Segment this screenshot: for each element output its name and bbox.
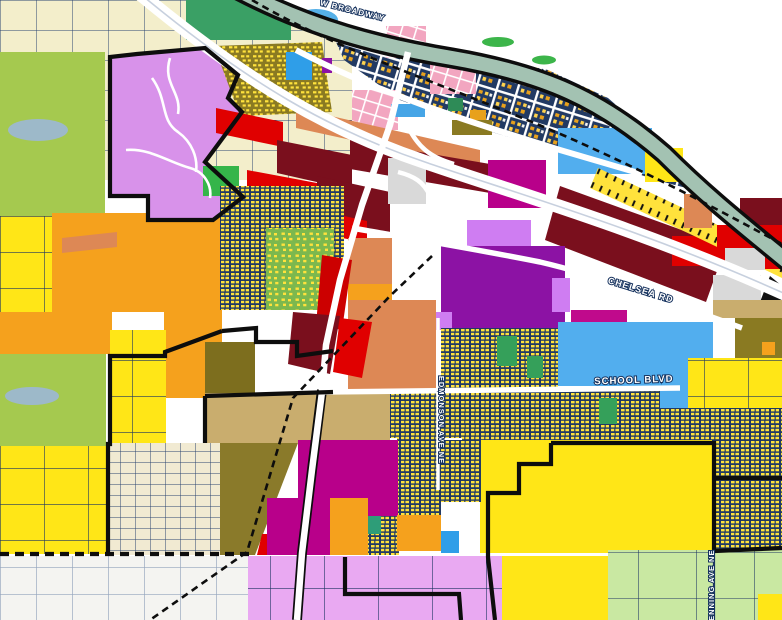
- green-accent-2: [527, 356, 543, 378]
- khaki-east: [713, 300, 782, 318]
- yellow-se-corner: [758, 594, 782, 620]
- yellow-mid-block: [110, 330, 166, 443]
- white-parcels-south: [0, 556, 248, 620]
- lightviolet-1: [467, 220, 531, 246]
- subyellow-south-1: [397, 438, 441, 518]
- subyellow-school-west: [462, 390, 554, 440]
- orange-dot-east: [762, 342, 775, 355]
- green-accent-3: [599, 398, 617, 424]
- tan-band-central: [205, 393, 390, 443]
- yellow-west-parcels: [0, 216, 53, 312]
- palegreen-southeast: [608, 550, 782, 620]
- blue-south: [441, 531, 459, 553]
- fenning-ave-label: FENNING AVE NE: [707, 550, 716, 620]
- subyellow-school-sw: [390, 390, 462, 438]
- zoning-map-canvas[interactable]: CHELSEA RDSCHOOL BLVDEDMONSON AVE NEFENN…: [0, 0, 782, 620]
- orange-south-a: [330, 498, 368, 555]
- purple-central: [441, 246, 565, 338]
- edmonson-ave-label: EDMONSON AVE NE: [437, 376, 446, 464]
- subyellow-south-3: [441, 440, 481, 502]
- pond-west: [8, 119, 68, 141]
- salmon-strip-central: [348, 238, 392, 284]
- olive-dark-central: [205, 342, 255, 395]
- yellow-east: [688, 358, 782, 410]
- orange-south-b: [397, 515, 441, 551]
- plain-yellow-southeast: [480, 440, 712, 553]
- river-island-2: [532, 56, 556, 65]
- zoning-map-svg[interactable]: CHELSEA RDSCHOOL BLVDEDMONSON AVE NEFENN…: [0, 0, 782, 620]
- green-accent-1: [497, 336, 517, 366]
- lavender-south: [248, 556, 502, 620]
- green-parcel-downtown: [448, 98, 463, 111]
- yellow-southwest: [0, 446, 108, 554]
- pond-west-lower: [5, 387, 59, 405]
- orange-west-large: [52, 213, 222, 312]
- subyellow-ne-block: [715, 478, 782, 550]
- orange-west-lower: [0, 312, 112, 354]
- lightviolet-3: [552, 278, 570, 312]
- river-island-1: [482, 37, 514, 47]
- yellow-south-strip: [502, 556, 608, 620]
- cream-subdivision-sw: [108, 443, 220, 555]
